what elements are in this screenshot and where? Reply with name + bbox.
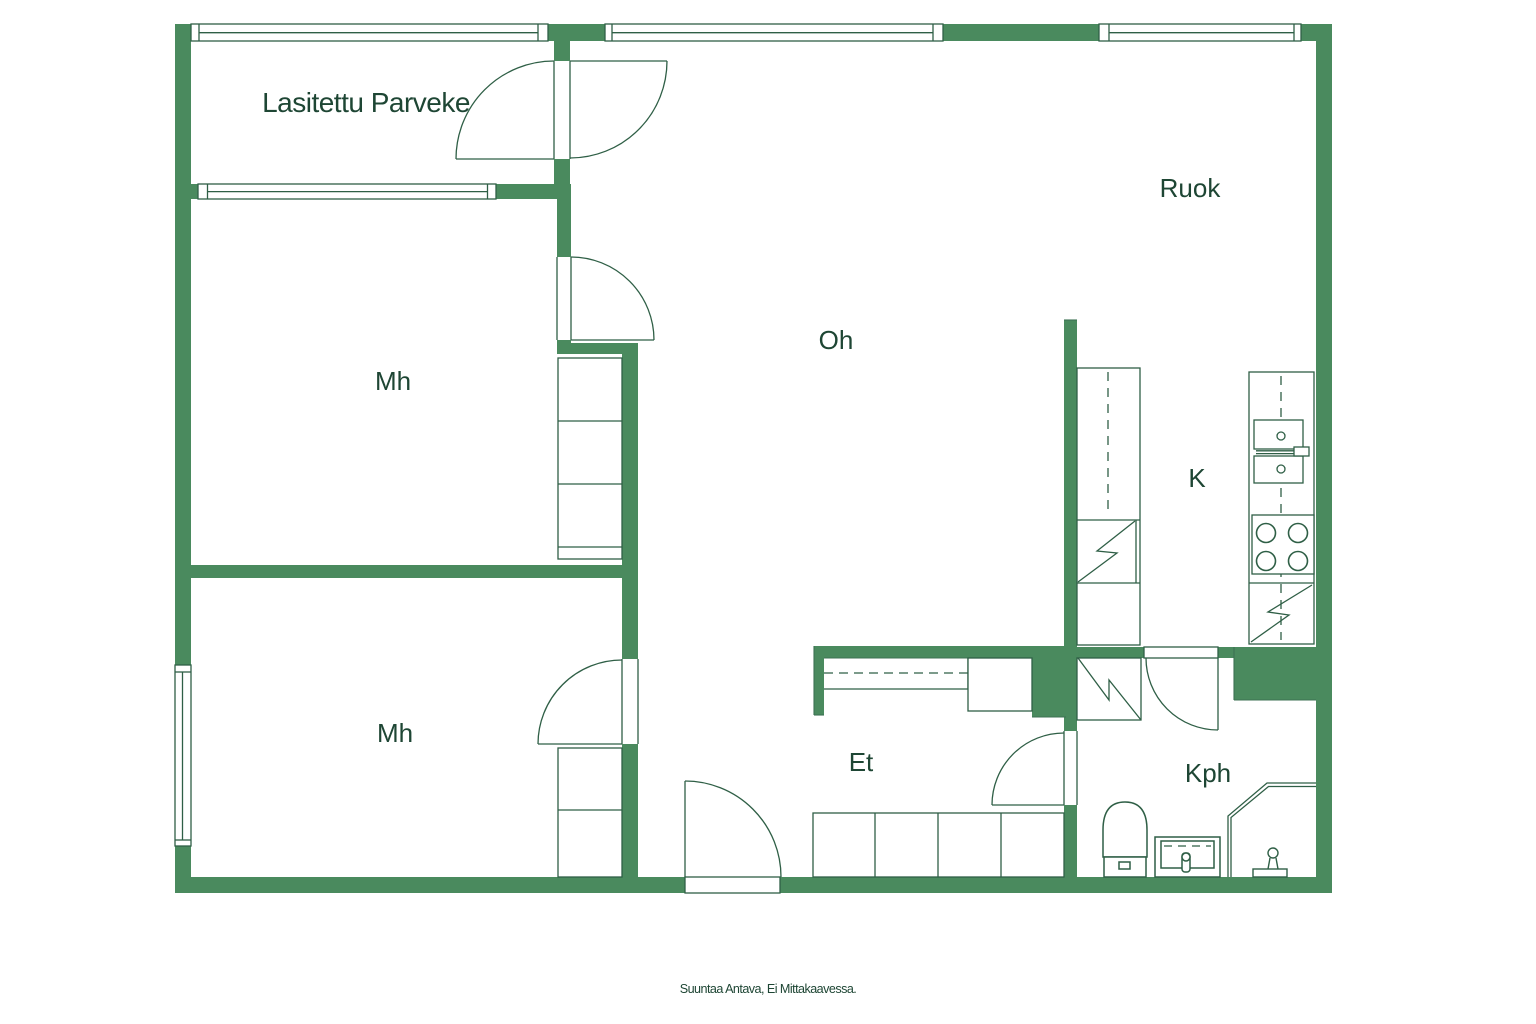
svg-text:Ruok: Ruok <box>1160 173 1222 203</box>
svg-text:Kph: Kph <box>1185 758 1231 788</box>
svg-text:Suuntaa Antava, Ei Mittakaaves: Suuntaa Antava, Ei Mittakaavessa. <box>680 982 857 996</box>
svg-text:Mh: Mh <box>375 366 411 396</box>
svg-text:Oh: Oh <box>819 325 854 355</box>
svg-text:K: K <box>1188 463 1206 493</box>
svg-text:Mh: Mh <box>377 718 413 748</box>
svg-text:Lasitettu Parveke: Lasitettu Parveke <box>262 87 470 118</box>
svg-text:Et: Et <box>849 747 874 777</box>
